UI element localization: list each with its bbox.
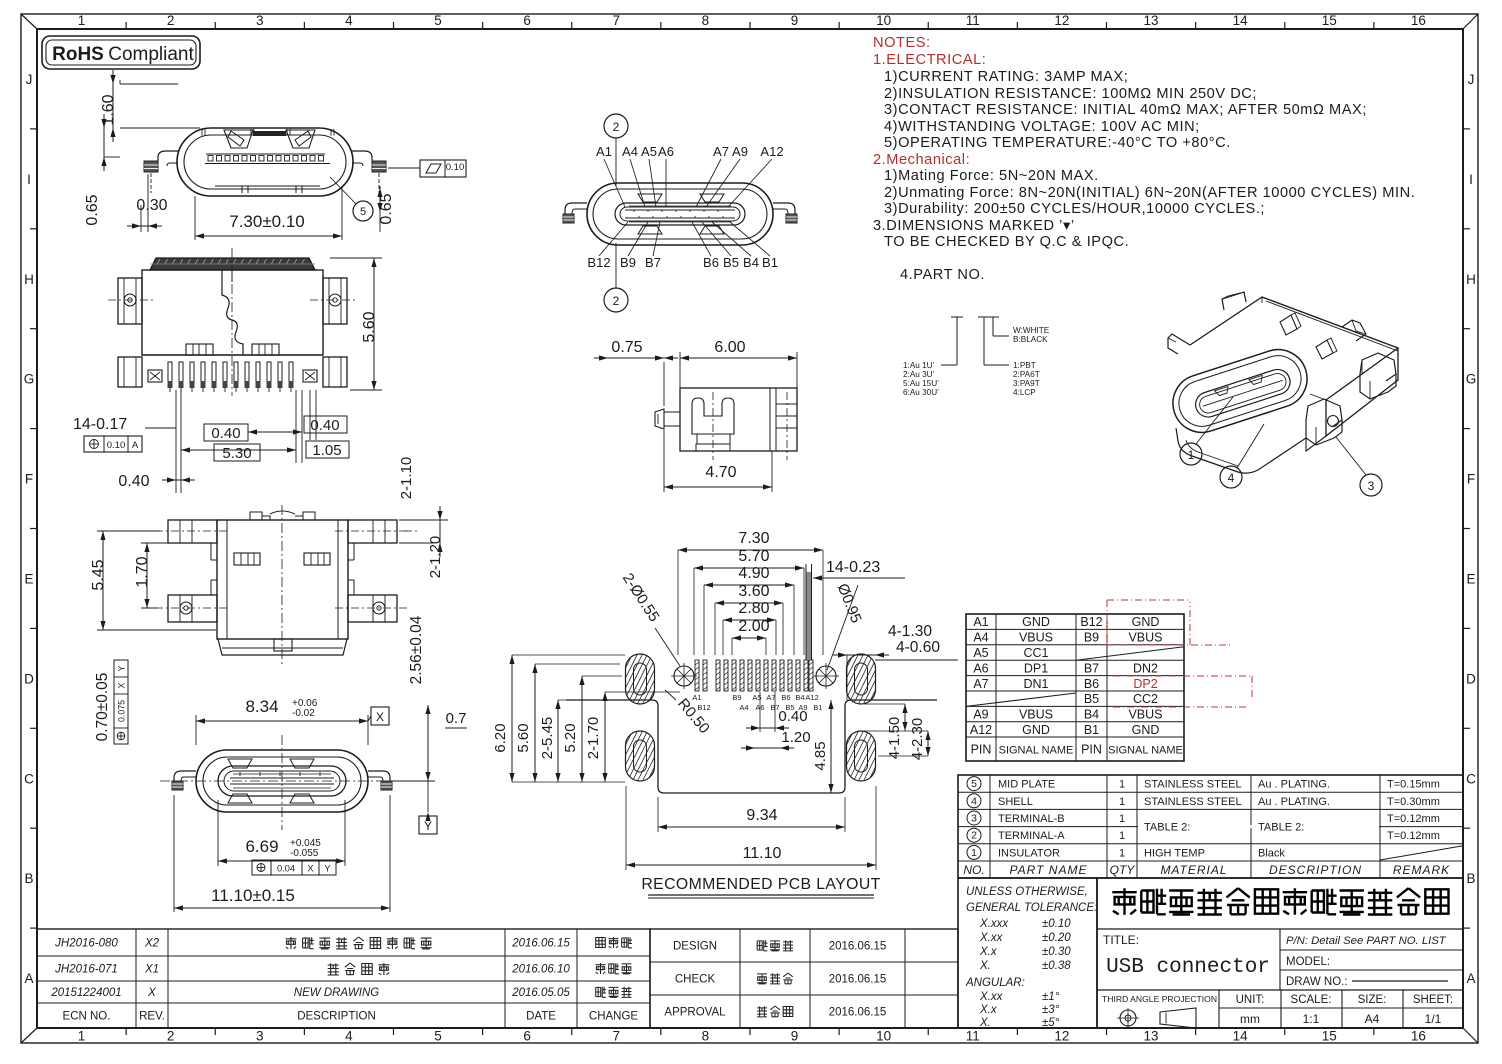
svg-text:MID PLATE: MID PLATE bbox=[998, 779, 1055, 791]
svg-text:TABLE 2:: TABLE 2: bbox=[1258, 822, 1304, 834]
svg-text:2:PA6T: 2:PA6T bbox=[1013, 370, 1040, 379]
svg-text:16: 16 bbox=[1411, 1029, 1426, 1044]
svg-text:11.10: 11.10 bbox=[743, 845, 782, 862]
svg-text:15: 15 bbox=[1322, 1029, 1337, 1044]
svg-text:D: D bbox=[1466, 671, 1476, 686]
svg-text:INSULATOR: INSULATOR bbox=[998, 847, 1060, 859]
svg-text:TERMINAL-B: TERMINAL-B bbox=[998, 813, 1065, 825]
svg-text:2-1.10: 2-1.10 bbox=[398, 457, 415, 500]
svg-text:6.00: 6.00 bbox=[714, 339, 745, 356]
svg-text:3: 3 bbox=[256, 13, 264, 28]
svg-text:4:LCP: 4:LCP bbox=[1013, 388, 1036, 397]
svg-text:B6: B6 bbox=[781, 693, 790, 702]
svg-text:1.20: 1.20 bbox=[781, 729, 810, 746]
svg-text:X1: X1 bbox=[144, 964, 159, 976]
svg-text:2: 2 bbox=[971, 830, 977, 842]
svg-text:7.30: 7.30 bbox=[738, 530, 769, 547]
svg-text:Au . PLATING.: Au . PLATING. bbox=[1258, 779, 1330, 791]
svg-text:14-0.17: 14-0.17 bbox=[73, 416, 127, 433]
svg-text:7.30±0.10: 7.30±0.10 bbox=[229, 212, 305, 231]
svg-text:2)INSULATION RESISTANCE: 100MΩ: 2)INSULATION RESISTANCE: 100MΩ MIN 250V … bbox=[884, 86, 1257, 102]
svg-text:2-1.20: 2-1.20 bbox=[427, 536, 444, 579]
svg-text:1/1: 1/1 bbox=[1425, 1012, 1442, 1026]
svg-text:X.x: X.x bbox=[979, 946, 998, 958]
svg-text:1.ELECTRICAL:: 1.ELECTRICAL: bbox=[873, 52, 986, 68]
svg-text:DATE: DATE bbox=[526, 1011, 556, 1023]
svg-text:X.: X. bbox=[979, 1017, 991, 1029]
svg-text:C: C bbox=[1466, 771, 1476, 786]
svg-text:5.60: 5.60 bbox=[515, 723, 532, 752]
svg-text:Compliant: Compliant bbox=[108, 44, 194, 65]
svg-text:5)OPERATING TEMPERATURE:-40°C: 5)OPERATING TEMPERATURE:-40°C TO +80°C. bbox=[884, 135, 1231, 151]
svg-text:GENERAL TOLERANCE:: GENERAL TOLERANCE: bbox=[966, 902, 1097, 914]
svg-text:A12: A12 bbox=[760, 144, 783, 159]
svg-text:1: 1 bbox=[78, 13, 86, 28]
svg-text:2.Mechanical:: 2.Mechanical: bbox=[873, 152, 970, 168]
svg-text:Au . PLATING.: Au . PLATING. bbox=[1258, 796, 1330, 808]
svg-text:G: G bbox=[1466, 372, 1477, 387]
svg-text:11: 11 bbox=[966, 1029, 980, 1044]
svg-text:20151224001: 20151224001 bbox=[50, 987, 121, 999]
svg-text:7: 7 bbox=[613, 1029, 621, 1044]
svg-text:I: I bbox=[27, 172, 31, 187]
svg-text:9.34: 9.34 bbox=[746, 807, 777, 824]
svg-text:CHECK: CHECK bbox=[675, 974, 716, 986]
svg-text:Black: Black bbox=[1258, 847, 1285, 859]
svg-text:A9: A9 bbox=[973, 708, 988, 722]
svg-text:B1: B1 bbox=[1084, 723, 1099, 737]
svg-text:±0.30: ±0.30 bbox=[1042, 946, 1071, 958]
svg-text:2016.06.15: 2016.06.15 bbox=[511, 938, 570, 950]
svg-text:T=0.12mm: T=0.12mm bbox=[1387, 813, 1440, 825]
svg-text:14-0.23: 14-0.23 bbox=[826, 559, 880, 576]
svg-text:A12: A12 bbox=[970, 723, 992, 737]
svg-text:GND: GND bbox=[1022, 615, 1050, 629]
svg-text:B12: B12 bbox=[587, 255, 610, 270]
svg-text:4: 4 bbox=[345, 13, 353, 28]
svg-text:A12: A12 bbox=[805, 693, 818, 702]
svg-text:A7: A7 bbox=[973, 677, 988, 691]
svg-text:4.90: 4.90 bbox=[738, 565, 769, 582]
svg-text:VBUS: VBUS bbox=[1128, 631, 1162, 645]
svg-text:MATERIAL: MATERIAL bbox=[1160, 863, 1227, 877]
svg-text:1:Au 1U’: 1:Au 1U’ bbox=[903, 361, 935, 370]
svg-text:H: H bbox=[1466, 272, 1476, 287]
svg-text:UNLESS OTHERWISE,: UNLESS OTHERWISE, bbox=[966, 886, 1088, 898]
svg-text:±1°: ±1° bbox=[1042, 991, 1060, 1003]
svg-text:2:Au 3U’: 2:Au 3U’ bbox=[903, 370, 935, 379]
svg-text:12: 12 bbox=[1054, 13, 1069, 28]
svg-text:mm: mm bbox=[1240, 1012, 1260, 1026]
svg-text:X.xx: X.xx bbox=[979, 932, 1004, 944]
svg-text:DN2: DN2 bbox=[1133, 661, 1158, 675]
svg-text:PIN: PIN bbox=[971, 743, 992, 757]
svg-text:B6: B6 bbox=[1084, 677, 1099, 691]
svg-text:6: 6 bbox=[523, 13, 531, 28]
svg-text:APPROVAL: APPROVAL bbox=[664, 1007, 726, 1019]
svg-text:4-1.50: 4-1.50 bbox=[886, 717, 903, 760]
svg-text:3)CONTACT RESISTANCE: INITIAL: 3)CONTACT RESISTANCE: INITIAL 40mΩ MAX; … bbox=[884, 102, 1367, 118]
svg-text:ANGULAR:: ANGULAR: bbox=[965, 977, 1025, 989]
svg-text:CC1: CC1 bbox=[1023, 646, 1048, 660]
svg-text:X: X bbox=[307, 864, 313, 874]
svg-text:JH2016-071: JH2016-071 bbox=[54, 964, 118, 976]
svg-text:5:Au 15U’: 5:Au 15U’ bbox=[903, 379, 939, 388]
svg-text:5.20: 5.20 bbox=[562, 723, 579, 752]
svg-text:J: J bbox=[1468, 72, 1475, 87]
svg-text:UNIT:: UNIT: bbox=[1236, 994, 1265, 1006]
svg-text:5.30: 5.30 bbox=[222, 445, 251, 462]
svg-text:T=0.30mm: T=0.30mm bbox=[1387, 796, 1440, 808]
svg-text:4-1.30: 4-1.30 bbox=[888, 623, 932, 640]
svg-text:B4: B4 bbox=[743, 255, 759, 270]
svg-text:A9: A9 bbox=[732, 144, 748, 159]
svg-text:A: A bbox=[132, 440, 139, 451]
svg-text:CHANGE: CHANGE bbox=[589, 1011, 639, 1023]
svg-text:B6: B6 bbox=[703, 255, 719, 270]
svg-text:A1: A1 bbox=[692, 693, 701, 702]
svg-text:HIGH TEMP: HIGH TEMP bbox=[1144, 847, 1205, 859]
svg-text:USB connector: USB connector bbox=[1106, 956, 1270, 979]
svg-text:8.34: 8.34 bbox=[245, 697, 278, 716]
svg-text:1: 1 bbox=[1119, 813, 1125, 825]
svg-text:9: 9 bbox=[791, 13, 799, 28]
svg-text:VBUS: VBUS bbox=[1128, 708, 1162, 722]
svg-text:0.10: 0.10 bbox=[446, 162, 465, 173]
svg-text:DP2: DP2 bbox=[1133, 677, 1157, 691]
svg-text:A7: A7 bbox=[713, 144, 729, 159]
svg-text:TITLE:: TITLE: bbox=[1103, 933, 1139, 947]
svg-text:REV.: REV. bbox=[139, 1011, 165, 1023]
svg-text:VBUS: VBUS bbox=[1019, 631, 1053, 645]
svg-text:4: 4 bbox=[971, 795, 977, 807]
svg-text:6:Au 30U’: 6:Au 30U’ bbox=[903, 388, 939, 397]
svg-text:8: 8 bbox=[702, 13, 710, 28]
svg-text:5.70: 5.70 bbox=[738, 548, 769, 565]
svg-text:REMARK: REMARK bbox=[1393, 863, 1450, 877]
svg-text:7: 7 bbox=[613, 13, 621, 28]
svg-text:MODEL:: MODEL: bbox=[1286, 956, 1330, 968]
svg-text:DESCRIPTION: DESCRIPTION bbox=[297, 1011, 376, 1023]
svg-text:2-5.45: 2-5.45 bbox=[539, 717, 556, 760]
svg-text:X.: X. bbox=[979, 960, 991, 972]
svg-text:0.7: 0.7 bbox=[446, 710, 467, 727]
svg-text:B7: B7 bbox=[645, 255, 661, 270]
svg-text:TO BE CHECKED BY Q.C & IPQC.: TO BE CHECKED BY Q.C & IPQC. bbox=[884, 234, 1129, 250]
svg-text:2016.06.10: 2016.06.10 bbox=[511, 964, 570, 976]
svg-text:15: 15 bbox=[1322, 13, 1337, 28]
svg-text:A5: A5 bbox=[973, 646, 988, 660]
svg-text:4: 4 bbox=[345, 1029, 353, 1044]
svg-text:1.70: 1.70 bbox=[134, 556, 151, 587]
svg-text:0.04: 0.04 bbox=[277, 864, 295, 874]
svg-text:2.56±0.04: 2.56±0.04 bbox=[408, 615, 425, 684]
svg-text:F: F bbox=[25, 472, 33, 487]
svg-text:3:PA9T: 3:PA9T bbox=[1013, 379, 1040, 388]
svg-text:GND: GND bbox=[1022, 723, 1050, 737]
svg-text:6.69: 6.69 bbox=[245, 837, 278, 856]
svg-text:10: 10 bbox=[876, 13, 891, 28]
svg-text:A6: A6 bbox=[658, 144, 674, 159]
svg-text:2016.05.05: 2016.05.05 bbox=[511, 987, 570, 999]
svg-text:H: H bbox=[24, 272, 34, 287]
svg-text:A4: A4 bbox=[739, 703, 748, 712]
svg-text:X: X bbox=[376, 710, 384, 724]
svg-text:B5: B5 bbox=[1084, 692, 1099, 706]
svg-text:1)CURRENT RATING: 3AMP MAX;: 1)CURRENT RATING: 3AMP MAX; bbox=[884, 69, 1128, 85]
svg-text:13: 13 bbox=[1144, 13, 1159, 28]
svg-text:SHELL: SHELL bbox=[998, 796, 1033, 808]
svg-text:B: B bbox=[24, 871, 33, 886]
svg-text:4-0.60: 4-0.60 bbox=[896, 639, 940, 656]
svg-text:0.40: 0.40 bbox=[211, 425, 240, 442]
svg-text:5.60: 5.60 bbox=[361, 311, 378, 342]
svg-text:A6: A6 bbox=[973, 661, 988, 675]
svg-text:14: 14 bbox=[1233, 13, 1249, 28]
svg-text:GND: GND bbox=[1132, 615, 1160, 629]
svg-text:1: 1 bbox=[1119, 796, 1125, 808]
svg-text:DESCRIPTION: DESCRIPTION bbox=[1269, 863, 1362, 877]
svg-text:0.70±0.05: 0.70±0.05 bbox=[94, 673, 111, 742]
svg-text:5: 5 bbox=[360, 206, 366, 218]
svg-text:±3°: ±3° bbox=[1042, 1004, 1060, 1016]
svg-text:B7: B7 bbox=[1084, 661, 1099, 675]
svg-text:4-2.30: 4-2.30 bbox=[909, 718, 926, 761]
svg-text:10: 10 bbox=[876, 1029, 891, 1044]
svg-text:B9: B9 bbox=[732, 693, 741, 702]
svg-text:X.xxx: X.xxx bbox=[979, 918, 1009, 930]
svg-text:2.00: 2.00 bbox=[738, 618, 769, 635]
svg-text:A: A bbox=[24, 971, 33, 986]
svg-text:CC2: CC2 bbox=[1133, 692, 1158, 706]
svg-text:±0.10: ±0.10 bbox=[1042, 918, 1071, 930]
svg-text:Y: Y bbox=[324, 864, 330, 874]
svg-text:0.40: 0.40 bbox=[118, 473, 149, 490]
svg-text:2016.06.15: 2016.06.15 bbox=[829, 1007, 887, 1019]
svg-text:2.80: 2.80 bbox=[738, 600, 769, 617]
svg-text:VBUS: VBUS bbox=[1019, 708, 1053, 722]
svg-text:2016.06.15: 2016.06.15 bbox=[829, 941, 887, 953]
svg-text:6.20: 6.20 bbox=[492, 723, 509, 752]
svg-text:4.85: 4.85 bbox=[812, 741, 829, 770]
svg-text:C: C bbox=[24, 771, 34, 786]
svg-text:0.75: 0.75 bbox=[611, 339, 642, 356]
svg-text:1: 1 bbox=[1119, 830, 1125, 842]
svg-text:13: 13 bbox=[1144, 1029, 1159, 1044]
svg-text:8: 8 bbox=[702, 1029, 710, 1044]
svg-text:2-1.70: 2-1.70 bbox=[585, 717, 602, 760]
svg-text:THIRD ANGLE PROJECTION: THIRD ANGLE PROJECTION bbox=[1102, 994, 1217, 1004]
svg-text:A: A bbox=[1466, 971, 1475, 986]
svg-text:3)Durability: 200±50 CYCLES/HO: 3)Durability: 200±50 CYCLES/HOUR,10000 C… bbox=[884, 201, 1265, 217]
svg-text:X: X bbox=[117, 682, 127, 688]
svg-text:T=0.15mm: T=0.15mm bbox=[1387, 779, 1440, 791]
svg-text:5: 5 bbox=[434, 1029, 442, 1044]
svg-text:4.70: 4.70 bbox=[705, 464, 736, 481]
svg-text:B12: B12 bbox=[1080, 615, 1102, 629]
svg-text:1: 1 bbox=[971, 847, 977, 859]
svg-text:14: 14 bbox=[1233, 1029, 1249, 1044]
svg-text:GND: GND bbox=[1132, 723, 1160, 737]
svg-text:JH2016-080: JH2016-080 bbox=[54, 938, 118, 950]
svg-text:B4: B4 bbox=[1084, 708, 1099, 722]
svg-text:0.65: 0.65 bbox=[84, 194, 101, 225]
svg-text:A7: A7 bbox=[766, 693, 775, 702]
svg-text:4)WITHSTANDING VOLTAGE: 100V A: 4)WITHSTANDING VOLTAGE: 100V AC MIN; bbox=[884, 119, 1200, 135]
svg-text:X2: X2 bbox=[144, 938, 160, 950]
svg-text:ECN NO.: ECN NO. bbox=[63, 1011, 111, 1023]
svg-text:B9: B9 bbox=[620, 255, 636, 270]
svg-text:2)Unmating Force: 8N~20N(INIT: 2)Unmating Force: 8N~20N(INITIAL) 6N~20N… bbox=[884, 185, 1415, 201]
svg-text:DP1: DP1 bbox=[1024, 661, 1048, 675]
svg-text:±0.38: ±0.38 bbox=[1042, 960, 1071, 972]
svg-text:1)Mating Force: 5N~20N MAX.: 1)Mating Force: 5N~20N MAX. bbox=[884, 168, 1099, 184]
svg-text:SCALE:: SCALE: bbox=[1291, 994, 1332, 1006]
svg-text:B5: B5 bbox=[723, 255, 739, 270]
svg-text:11.10±0.15: 11.10±0.15 bbox=[211, 886, 295, 905]
svg-text:B1: B1 bbox=[762, 255, 778, 270]
svg-text:4: 4 bbox=[1228, 471, 1235, 485]
svg-text:RECOMMENDED PCB LAYOUT: RECOMMENDED PCB LAYOUT bbox=[641, 876, 880, 893]
svg-text:DN1: DN1 bbox=[1023, 677, 1048, 691]
svg-text:DRAW NO.:: DRAW NO.: bbox=[1286, 976, 1348, 988]
svg-text:DESIGN: DESIGN bbox=[673, 941, 717, 953]
svg-text:E: E bbox=[24, 571, 33, 586]
svg-text:0.40: 0.40 bbox=[778, 708, 807, 725]
svg-text:QTY: QTY bbox=[1110, 863, 1136, 877]
svg-text:1: 1 bbox=[1119, 779, 1125, 791]
svg-text:A1: A1 bbox=[596, 144, 612, 159]
svg-text:1.05: 1.05 bbox=[312, 442, 341, 459]
svg-text:B4: B4 bbox=[795, 693, 804, 702]
svg-text:A4: A4 bbox=[973, 631, 988, 645]
svg-text:A4: A4 bbox=[1365, 1012, 1380, 1026]
svg-text:6: 6 bbox=[523, 1029, 531, 1044]
svg-text:1:1: 1:1 bbox=[1303, 1012, 1320, 1026]
svg-text:TABLE 2:: TABLE 2: bbox=[1144, 822, 1190, 834]
svg-text:PART NAME: PART NAME bbox=[1010, 863, 1088, 877]
svg-text:Y: Y bbox=[424, 819, 432, 833]
svg-text:NOTES:: NOTES: bbox=[873, 35, 931, 51]
svg-text:0.40: 0.40 bbox=[310, 417, 339, 434]
svg-text:B:BLACK: B:BLACK bbox=[1013, 335, 1048, 344]
svg-text:A5: A5 bbox=[641, 144, 657, 159]
svg-text:12: 12 bbox=[1054, 1029, 1069, 1044]
svg-text:-0.02: -0.02 bbox=[292, 708, 315, 719]
svg-text:3.DIMENSIONS MARKED ’▾’: 3.DIMENSIONS MARKED ’▾’ bbox=[873, 218, 1075, 234]
svg-text:T=0.12mm: T=0.12mm bbox=[1387, 830, 1440, 842]
svg-text:2: 2 bbox=[167, 1029, 175, 1044]
svg-text:SIGNAL NAME: SIGNAL NAME bbox=[999, 745, 1074, 757]
svg-text:X: X bbox=[147, 987, 157, 999]
svg-text:SIGNAL NAME: SIGNAL NAME bbox=[1108, 745, 1183, 757]
svg-text:4.PART NO.: 4.PART NO. bbox=[900, 267, 985, 283]
svg-text:11: 11 bbox=[966, 13, 980, 28]
svg-text:3: 3 bbox=[256, 1029, 264, 1044]
svg-text:1:PBT: 1:PBT bbox=[1013, 361, 1036, 370]
svg-text:PIN: PIN bbox=[1081, 743, 1102, 757]
svg-text:P/N: Detail See PART NO. LIST: P/N: Detail See PART NO. LIST bbox=[1286, 935, 1447, 947]
svg-text:A1: A1 bbox=[973, 615, 988, 629]
svg-text:NEW DRAWING: NEW DRAWING bbox=[294, 987, 379, 999]
svg-text:5.45: 5.45 bbox=[90, 559, 107, 590]
svg-text:3: 3 bbox=[971, 813, 977, 825]
svg-text:B9: B9 bbox=[1084, 631, 1099, 645]
svg-text:2: 2 bbox=[613, 120, 620, 134]
svg-text:NO.: NO. bbox=[963, 863, 984, 877]
svg-text:5: 5 bbox=[434, 13, 442, 28]
svg-text:3.60: 3.60 bbox=[738, 583, 769, 600]
svg-text:-0.055: -0.055 bbox=[290, 848, 319, 859]
svg-text:1: 1 bbox=[1188, 448, 1195, 462]
svg-text:±0.20: ±0.20 bbox=[1042, 932, 1071, 944]
svg-text:9: 9 bbox=[791, 1029, 799, 1044]
svg-text:0.075: 0.075 bbox=[117, 700, 127, 722]
svg-text:1: 1 bbox=[1119, 847, 1125, 859]
svg-text:1: 1 bbox=[78, 1029, 86, 1044]
svg-text:B: B bbox=[1466, 871, 1475, 886]
svg-text:X.xx: X.xx bbox=[979, 991, 1004, 1003]
svg-text:3: 3 bbox=[1368, 479, 1375, 493]
svg-text:J: J bbox=[26, 72, 33, 87]
svg-text:F: F bbox=[1467, 472, 1475, 487]
svg-text:B1: B1 bbox=[813, 703, 822, 712]
svg-text:D: D bbox=[24, 671, 34, 686]
svg-text:G: G bbox=[24, 372, 35, 387]
svg-text:TERMINAL-A: TERMINAL-A bbox=[998, 830, 1065, 842]
svg-text:2016.06.15: 2016.06.15 bbox=[829, 974, 887, 986]
svg-text:SHEET:: SHEET: bbox=[1413, 994, 1453, 1006]
svg-text:E: E bbox=[1466, 571, 1475, 586]
svg-text:16: 16 bbox=[1411, 13, 1426, 28]
svg-text:0.10: 0.10 bbox=[107, 440, 126, 451]
svg-text:X.x: X.x bbox=[979, 1004, 998, 1016]
svg-text:I: I bbox=[1469, 172, 1473, 187]
svg-text:SIZE:: SIZE: bbox=[1358, 994, 1387, 1006]
svg-text:2: 2 bbox=[167, 13, 175, 28]
svg-text:Y: Y bbox=[117, 665, 127, 671]
svg-text:W:WHITE: W:WHITE bbox=[1013, 326, 1050, 335]
svg-text:±5°: ±5° bbox=[1042, 1017, 1060, 1029]
svg-text:5: 5 bbox=[971, 778, 977, 790]
svg-text:STAINLESS STEEL: STAINLESS STEEL bbox=[1144, 779, 1242, 791]
svg-text:STAINLESS STEEL: STAINLESS STEEL bbox=[1144, 796, 1242, 808]
svg-text:A4: A4 bbox=[622, 144, 638, 159]
svg-text:RoHS: RoHS bbox=[52, 44, 104, 65]
svg-text:2: 2 bbox=[613, 294, 620, 308]
